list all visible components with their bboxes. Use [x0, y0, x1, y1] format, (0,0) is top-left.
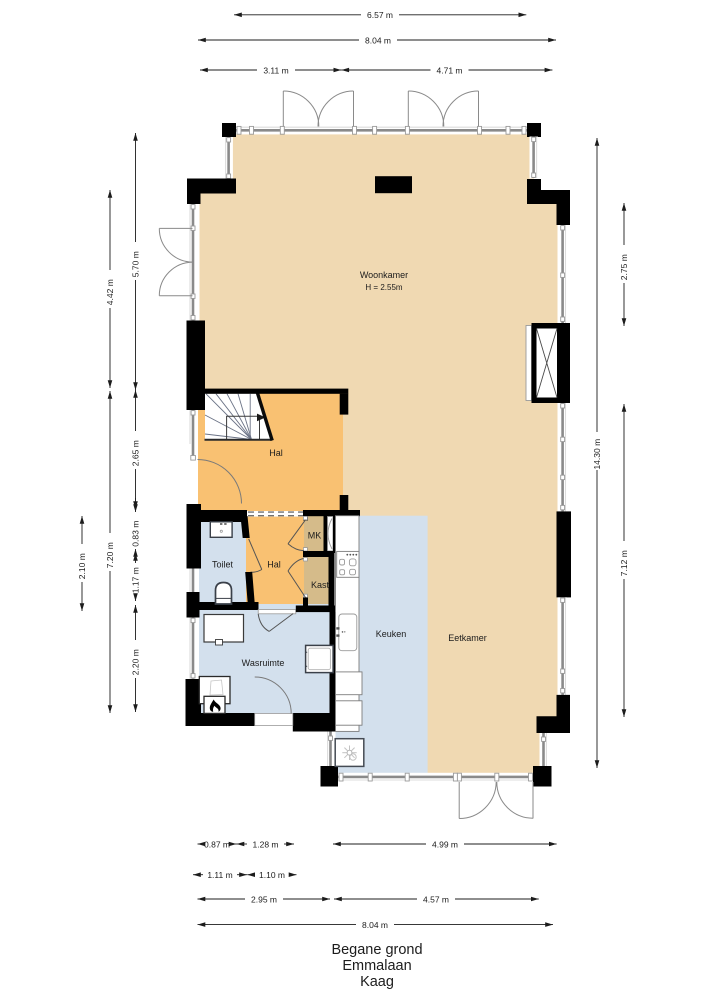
svg-text:1.28 m: 1.28 m	[253, 839, 279, 849]
svg-text:H = 2.55m: H = 2.55m	[365, 283, 402, 292]
svg-text:0.87 m: 0.87 m	[204, 839, 230, 849]
svg-text:Kaag: Kaag	[360, 974, 394, 990]
svg-text:Woonkamer: Woonkamer	[360, 270, 408, 280]
svg-text:2.10 m: 2.10 m	[77, 553, 87, 579]
svg-text:4.57 m: 4.57 m	[423, 894, 449, 904]
svg-text:6.57 m: 6.57 m	[367, 10, 393, 20]
svg-text:4.99 m: 4.99 m	[432, 839, 458, 849]
svg-text:7.12 m: 7.12 m	[619, 550, 629, 576]
svg-text:Hal: Hal	[267, 560, 281, 570]
svg-text:1.10 m: 1.10 m	[259, 870, 285, 880]
svg-text:Wasruimte: Wasruimte	[242, 658, 285, 668]
svg-text:2.95 m: 2.95 m	[251, 894, 277, 904]
svg-text:Begane grond: Begane grond	[331, 942, 422, 958]
svg-text:8.04 m: 8.04 m	[362, 920, 388, 930]
svg-text:5.70 m: 5.70 m	[131, 251, 141, 277]
svg-text:8.04 m: 8.04 m	[365, 35, 391, 45]
svg-text:2.20 m: 2.20 m	[131, 649, 141, 675]
svg-text:Eetkamer: Eetkamer	[448, 633, 487, 643]
svg-text:0.83 m: 0.83 m	[131, 521, 141, 547]
svg-text:MK: MK	[308, 531, 322, 541]
svg-text:14.30 m: 14.30 m	[592, 439, 602, 470]
svg-text:4.42 m: 4.42 m	[105, 279, 115, 305]
svg-text:Kast: Kast	[311, 580, 330, 590]
svg-text:3.11 m: 3.11 m	[263, 65, 288, 75]
svg-text:Hal: Hal	[269, 448, 283, 458]
svg-text:Toilet: Toilet	[212, 560, 234, 570]
svg-text:2.75 m: 2.75 m	[619, 254, 629, 280]
svg-text:4.71 m: 4.71 m	[437, 65, 463, 75]
svg-text:2.65 m: 2.65 m	[131, 440, 141, 466]
svg-text:1.17 m: 1.17 m	[131, 567, 141, 593]
svg-text:Emmalaan: Emmalaan	[342, 958, 411, 974]
svg-text:1.11 m: 1.11 m	[207, 870, 232, 880]
svg-text:Keuken: Keuken	[376, 629, 407, 639]
svg-text:7.20 m: 7.20 m	[105, 542, 115, 568]
